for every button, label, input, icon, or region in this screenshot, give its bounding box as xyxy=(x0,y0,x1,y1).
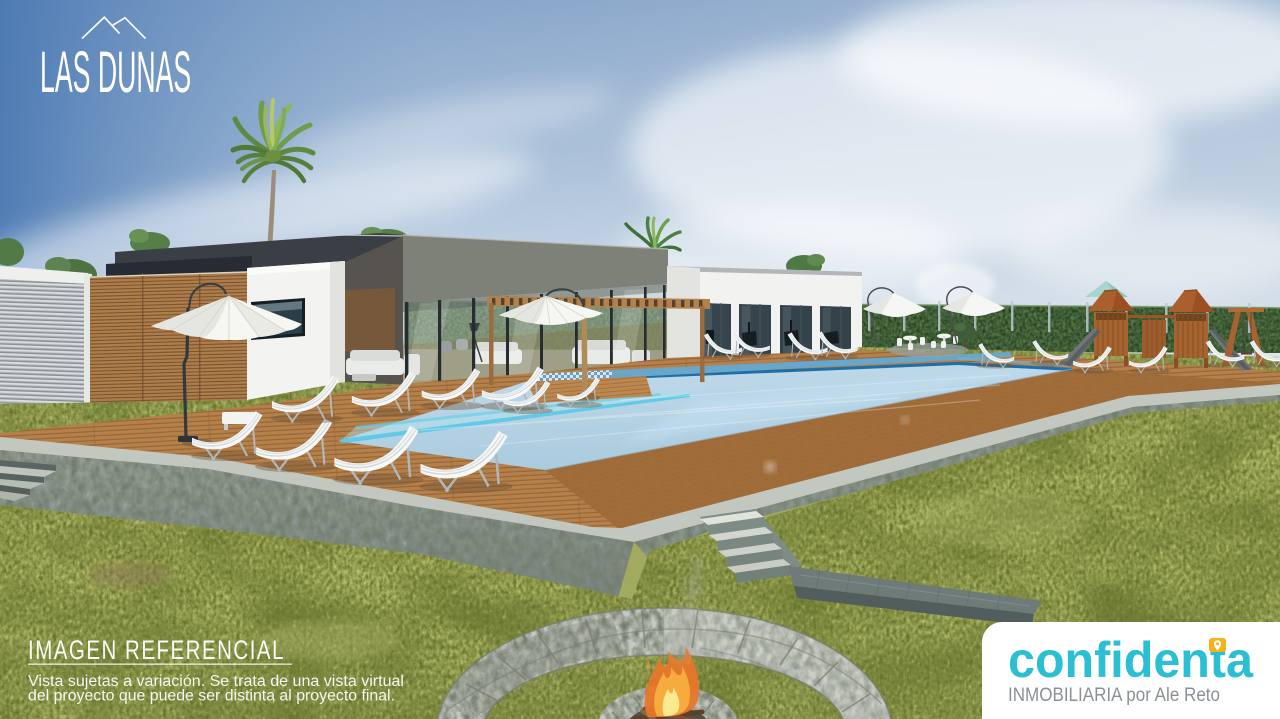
svg-text:del proyecto que puede ser dis: del proyecto que puede ser distinta al p… xyxy=(28,688,395,705)
svg-text:IMAGEN REFERENCIAL: IMAGEN REFERENCIAL xyxy=(28,635,285,665)
svg-text:LAS DUNAS: LAS DUNAS xyxy=(40,39,191,104)
svg-text:INMOBILIARIA por Ale Reto: INMOBILIARIA por Ale Reto xyxy=(1008,685,1220,706)
